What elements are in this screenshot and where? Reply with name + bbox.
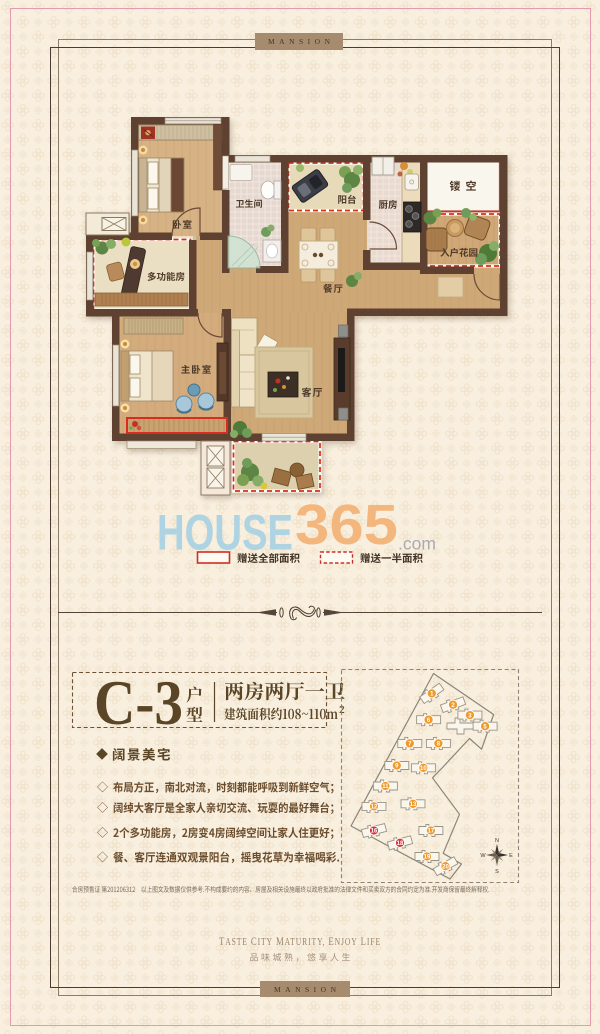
svg-text:16: 16 [371,829,378,835]
svg-text:S: S [495,869,499,875]
svg-text:10: 10 [420,766,427,772]
svg-text:E: E [509,853,513,859]
svg-text:17: 17 [428,829,435,835]
svg-text:W: W [480,853,486,859]
svg-text:13: 13 [410,802,417,808]
svg-text:19: 19 [424,855,431,861]
svg-text:18: 18 [397,841,404,847]
svg-text:TASTE CITY MATURITY, ENJOY LIF: TASTE CITY MATURITY, ENJOY LIFE [219,934,381,948]
svg-text:11: 11 [382,784,389,790]
svg-text:C-3: C-3 [94,667,183,738]
svg-text:12: 12 [371,805,378,811]
svg-text:N: N [495,838,499,844]
svg-text:20: 20 [442,864,449,870]
